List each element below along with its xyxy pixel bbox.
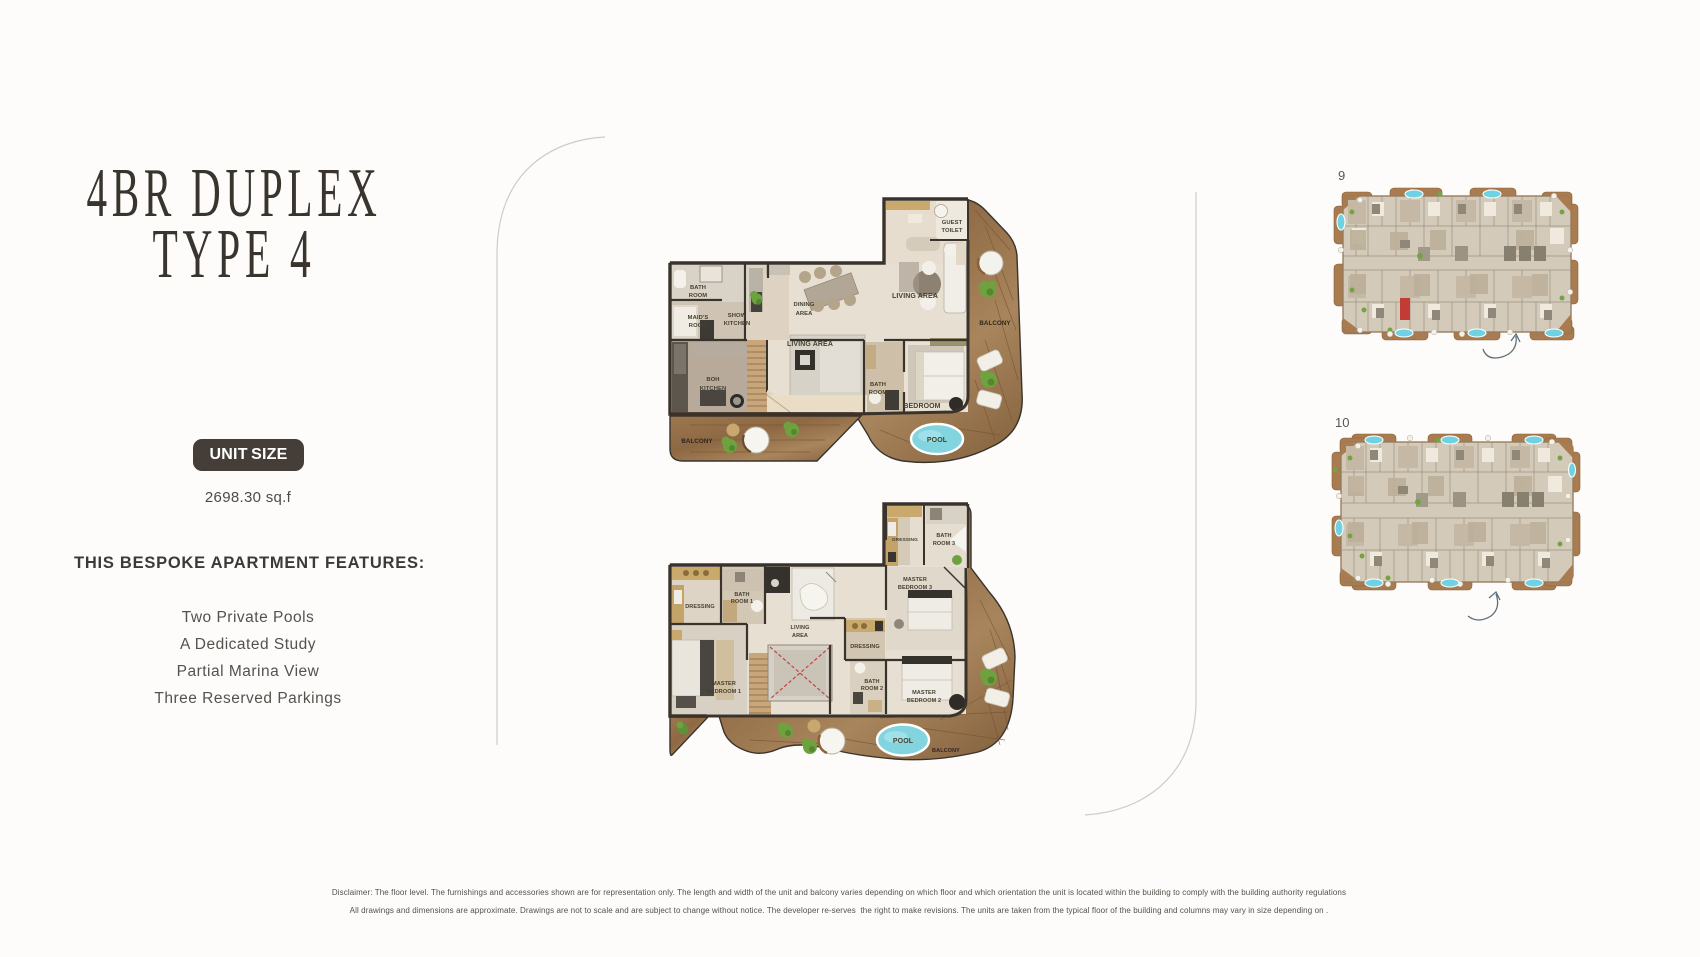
svg-text:ROOM: ROOM [869, 390, 888, 396]
svg-text:KITCHEN: KITCHEN [724, 321, 750, 327]
svg-text:LIVING AREA: LIVING AREA [787, 341, 833, 348]
svg-text:BATH: BATH [734, 592, 749, 598]
svg-text:BATH: BATH [690, 285, 706, 291]
svg-text:TOILET: TOILET [941, 228, 962, 234]
svg-text:MASTER: MASTER [903, 577, 927, 583]
svg-text:BEDROOM 1: BEDROOM 1 [707, 689, 741, 695]
svg-text:DRESSING: DRESSING [850, 644, 880, 650]
svg-text:BALCONY: BALCONY [979, 320, 1011, 327]
svg-text:MASTER: MASTER [712, 681, 736, 687]
svg-text:10: 10 [1335, 415, 1349, 430]
svg-text:9: 9 [1338, 168, 1345, 183]
svg-text:BEDROOM: BEDROOM [903, 403, 940, 410]
svg-text:BATH: BATH [870, 382, 886, 388]
svg-text:BEDROOM 2: BEDROOM 2 [907, 698, 941, 704]
svg-text:DRESSING: DRESSING [892, 537, 918, 543]
svg-text:POOL: POOL [893, 738, 914, 745]
svg-text:BATH: BATH [864, 679, 879, 685]
svg-text:BALCONY: BALCONY [681, 438, 713, 445]
svg-text:POOL: POOL [927, 437, 948, 444]
svg-text:KITCHEN: KITCHEN [700, 386, 726, 392]
svg-text:SHOW: SHOW [728, 313, 747, 319]
svg-text:BOH: BOH [706, 377, 719, 383]
svg-text:BALCONY: BALCONY [932, 748, 960, 754]
svg-text:MAID'S: MAID'S [688, 315, 709, 321]
svg-text:LIVING: LIVING [791, 625, 810, 631]
svg-text:ROOM 3: ROOM 3 [933, 541, 955, 547]
svg-text:ROOM 1: ROOM 1 [731, 599, 753, 605]
svg-text:ROOM: ROOM [689, 293, 708, 299]
svg-text:DRESSING: DRESSING [685, 604, 715, 610]
svg-text:AREA: AREA [792, 633, 808, 639]
svg-text:GUEST: GUEST [942, 220, 963, 226]
svg-text:ROOM: ROOM [689, 323, 708, 329]
svg-text:DINING: DINING [794, 302, 815, 308]
svg-text:BATH: BATH [936, 533, 951, 539]
svg-text:ROOM 2: ROOM 2 [861, 686, 883, 692]
svg-text:MASTER: MASTER [912, 690, 936, 696]
svg-text:AREA: AREA [796, 311, 814, 317]
svg-text:LIVING AREA: LIVING AREA [892, 293, 938, 300]
svg-text:BEDROOM 3: BEDROOM 3 [898, 585, 932, 591]
